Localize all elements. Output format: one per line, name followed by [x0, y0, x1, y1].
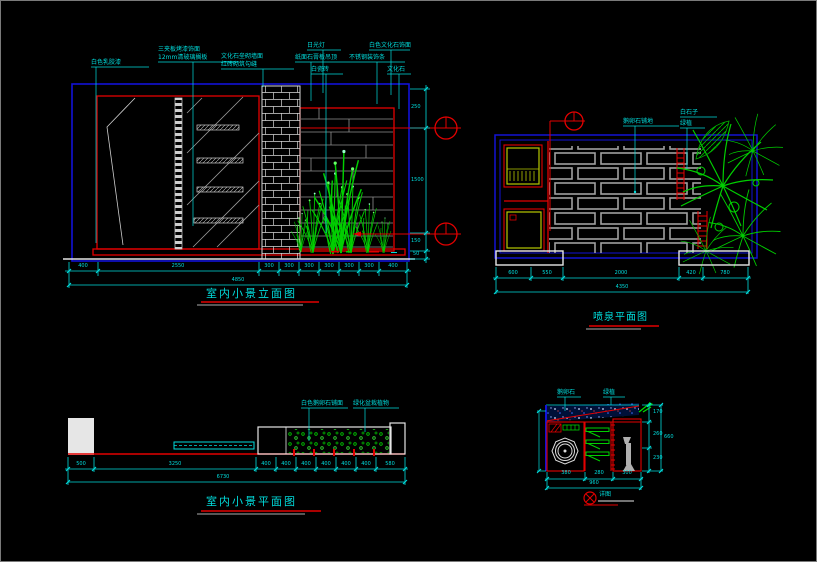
dim-value: 2000 — [615, 271, 628, 276]
dim-value: 250 — [411, 105, 421, 110]
dim-total: 4850 — [232, 278, 245, 283]
dim-total: 4350 — [616, 285, 629, 290]
floor-plan-dimension-lines — [65, 457, 408, 485]
dim-value: 300 — [324, 264, 334, 269]
cad-linework — [1, 1, 817, 562]
dim-value: 300 — [344, 264, 354, 269]
dim-value: 580 — [385, 462, 395, 467]
label-white-stone: 白石子 — [680, 110, 698, 117]
fountain-plan-drawing[interactable] — [493, 112, 783, 329]
label-detail-pebble: 鹅卵石 — [557, 390, 575, 397]
detail-drawing[interactable] — [537, 397, 663, 505]
label-gypsum: 纸面石膏板吊顶 — [295, 55, 337, 62]
dim-total: 960 — [589, 481, 599, 486]
washer-drum — [552, 438, 578, 464]
label-veneer: 三夹板烤漆饰面 — [158, 47, 200, 54]
dim-total: 660 — [664, 435, 674, 440]
dim-value: 1500 — [411, 178, 424, 183]
dim-total: 6730 — [217, 475, 230, 480]
dim-value: 170 — [653, 410, 663, 415]
label-paint: 白色乳胶漆 — [91, 60, 121, 67]
label-steel: 不锈钢装饰条 — [349, 55, 385, 62]
dim-value: 150 — [411, 239, 421, 244]
floor-plan-title: 室内小景平面图 — [206, 496, 297, 507]
dim-value: 300 — [264, 264, 274, 269]
dim-value: 780 — [720, 271, 730, 276]
dim-value: 280 — [594, 471, 604, 476]
plan-title: 喷泉平面图 — [593, 313, 648, 323]
elevation-drawing[interactable] — [63, 50, 461, 305]
label-brick: 红砖砌筑勾缝 — [221, 62, 257, 69]
drain-pipe — [623, 437, 635, 471]
label-culture-stone: 文化石 — [387, 67, 405, 74]
label-plant: 绿植 — [680, 121, 692, 128]
dim-value: 300 — [284, 264, 294, 269]
detail-caption: 详图 — [599, 492, 611, 499]
label-lamp: 日光灯 — [307, 43, 325, 50]
dim-value: 420 — [686, 271, 696, 276]
dim-value: 400 — [388, 264, 398, 269]
elevation-dimension-lines — [65, 85, 430, 288]
dim-value: 600 — [508, 271, 518, 276]
grass-plants — [291, 150, 391, 254]
label-stone-wall: 文化石垒砌墙面 — [221, 54, 263, 61]
elevation-title: 室内小景立面图 — [206, 288, 297, 299]
dim-value: 400 — [341, 462, 351, 467]
detail-shelves — [586, 428, 609, 461]
dim-value: 500 — [76, 462, 86, 467]
dim-value: 400 — [78, 264, 88, 269]
label-paving: 鹅卵石铺地 — [623, 119, 653, 126]
label-tile: 白瓷砖 — [311, 67, 329, 74]
dim-value: 300 — [622, 471, 632, 476]
dim-value: 50 — [413, 252, 419, 257]
label-detail-plant: 绿植 — [603, 390, 615, 397]
dim-value: 2550 — [172, 264, 185, 269]
dim-value: 300 — [364, 264, 374, 269]
dim-value: 400 — [261, 462, 271, 467]
cad-viewport: 白色乳胶漆 三夹板烤漆饰面 12mm清玻璃搁板 文化石垒砌墙面 红砖砌筑勾缝 日… — [0, 0, 817, 562]
dim-value: 260 — [653, 432, 663, 437]
dim-value: 380 — [561, 471, 571, 476]
dim-value: 400 — [301, 462, 311, 467]
label-pebble: 白色鹅卵石铺面 — [301, 401, 343, 408]
label-glass-shelf: 12mm清玻璃搁板 — [158, 55, 207, 62]
dim-value: 400 — [321, 462, 331, 467]
dim-value: 400 — [361, 462, 371, 467]
dim-value: 550 — [542, 271, 552, 276]
dim-value: 400 — [281, 462, 291, 467]
label-stone-face: 白色文化石饰面 — [369, 43, 411, 50]
elevation-marker-top — [301, 117, 461, 139]
dim-value: 300 — [304, 264, 314, 269]
dim-value: 3250 — [169, 462, 182, 467]
dim-value: 230 — [653, 456, 663, 461]
label-plants: 绿化盆栽植物 — [353, 401, 389, 408]
